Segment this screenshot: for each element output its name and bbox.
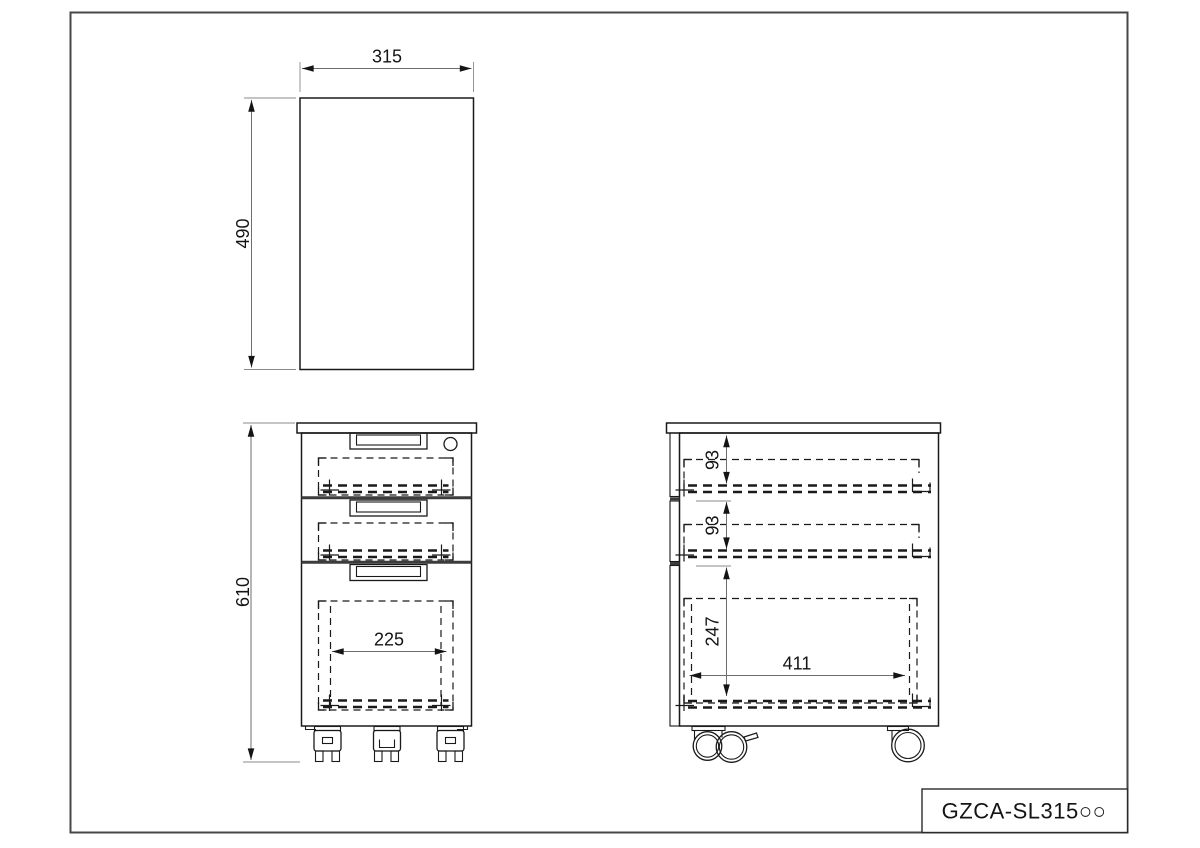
side-view: 93 93 247 411 bbox=[667, 423, 941, 762]
dim-label-inner-depth: 411 bbox=[783, 654, 812, 674]
front-caster-middle bbox=[374, 727, 401, 762]
front-view: 225 610 bbox=[233, 423, 477, 762]
front-caster-right bbox=[437, 727, 464, 762]
dim-label-file-drawer-height: 247 bbox=[703, 616, 723, 646]
dim-label-drawer2-height: 93 bbox=[703, 515, 723, 535]
sheet-border bbox=[71, 13, 1128, 833]
dim-label-drawer1-height: 93 bbox=[703, 450, 723, 470]
technical-drawing-page: 315 490 225 bbox=[0, 0, 1200, 848]
front-top-panel bbox=[297, 423, 477, 433]
side-top-panel bbox=[667, 423, 941, 433]
dim-top-width: 315 bbox=[300, 47, 474, 93]
dim-label-top-width: 315 bbox=[372, 47, 402, 67]
dim-label-inner-width: 225 bbox=[374, 630, 404, 650]
dim-front-height: 610 bbox=[233, 423, 300, 762]
drawer3-handle bbox=[350, 565, 427, 581]
front-body-outline bbox=[302, 433, 472, 726]
drawing-code: GZCA-SL315○○ bbox=[942, 799, 1107, 824]
drawing-canvas: 315 490 225 bbox=[0, 0, 1200, 848]
lock-cylinder bbox=[444, 438, 457, 451]
front-caster-left bbox=[314, 727, 341, 762]
file-drawer-internals-front bbox=[319, 601, 454, 711]
dim-front-inner-width: 225 bbox=[332, 630, 447, 652]
top-view: 315 490 bbox=[233, 47, 474, 370]
dim-side-inner-depth: 411 bbox=[690, 654, 906, 676]
title-block: GZCA-SL315○○ bbox=[922, 789, 1128, 833]
side-caster-rear bbox=[888, 727, 925, 762]
side-caster-front-twin bbox=[692, 727, 758, 763]
drawer2-handle bbox=[350, 500, 427, 516]
dim-label-top-depth: 490 bbox=[233, 218, 253, 248]
dim-side-file-drawer-height: 247 bbox=[696, 566, 731, 696]
brake-lever bbox=[744, 733, 758, 741]
dim-top-depth: 490 bbox=[233, 98, 296, 370]
top-view-outline bbox=[300, 98, 474, 370]
drawer1-internals bbox=[319, 458, 454, 496]
dim-label-front-height: 610 bbox=[233, 577, 253, 607]
drawer1-handle bbox=[350, 433, 427, 449]
drawer2-internals bbox=[319, 523, 454, 561]
side-body-outline bbox=[680, 433, 939, 726]
side-drawer-front-edges bbox=[670, 433, 680, 726]
